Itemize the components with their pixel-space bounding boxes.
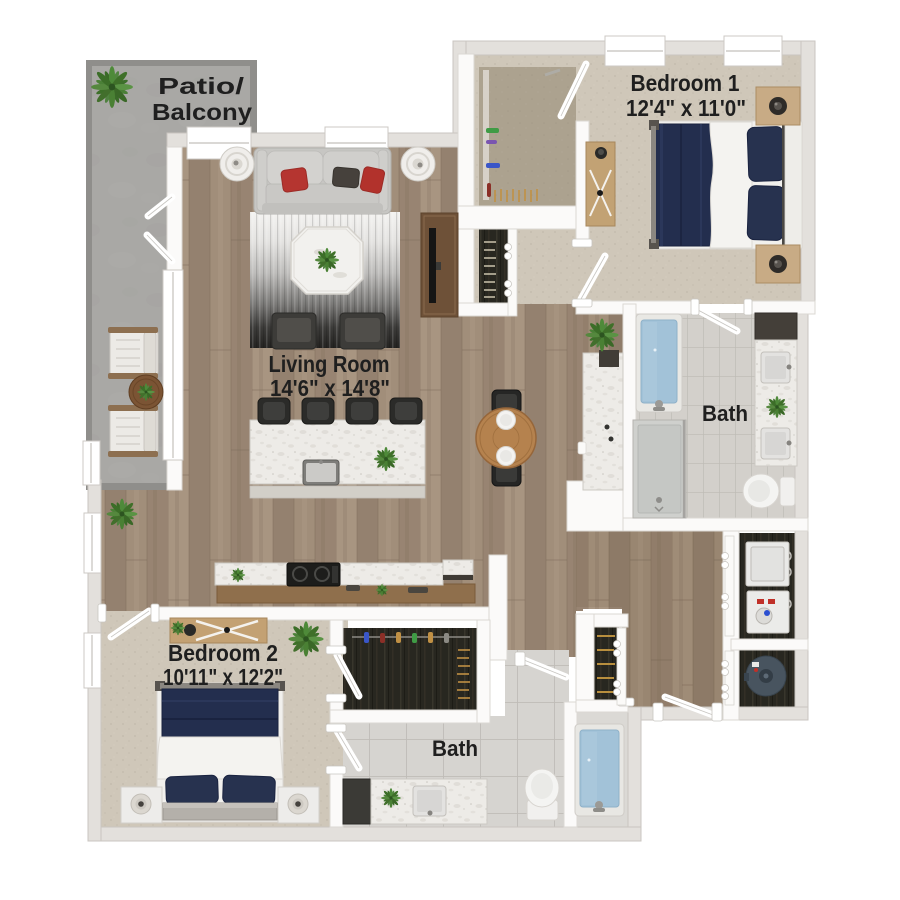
svg-text:Bath: Bath: [432, 736, 478, 761]
svg-text:Living Room: Living Room: [269, 351, 390, 377]
svg-text:Bedroom 1: Bedroom 1: [631, 70, 740, 96]
svg-text:Bedroom 2: Bedroom 2: [168, 640, 278, 666]
svg-text:Patio/: Patio/: [158, 73, 245, 99]
svg-text:Balcony: Balcony: [152, 99, 252, 125]
svg-text:12'4" x 11'0": 12'4" x 11'0": [626, 95, 746, 121]
svg-text:14'6" x 14'8": 14'6" x 14'8": [270, 375, 390, 401]
svg-text:10'11" x 12'2": 10'11" x 12'2": [163, 664, 283, 690]
svg-text:Bath: Bath: [702, 401, 748, 426]
